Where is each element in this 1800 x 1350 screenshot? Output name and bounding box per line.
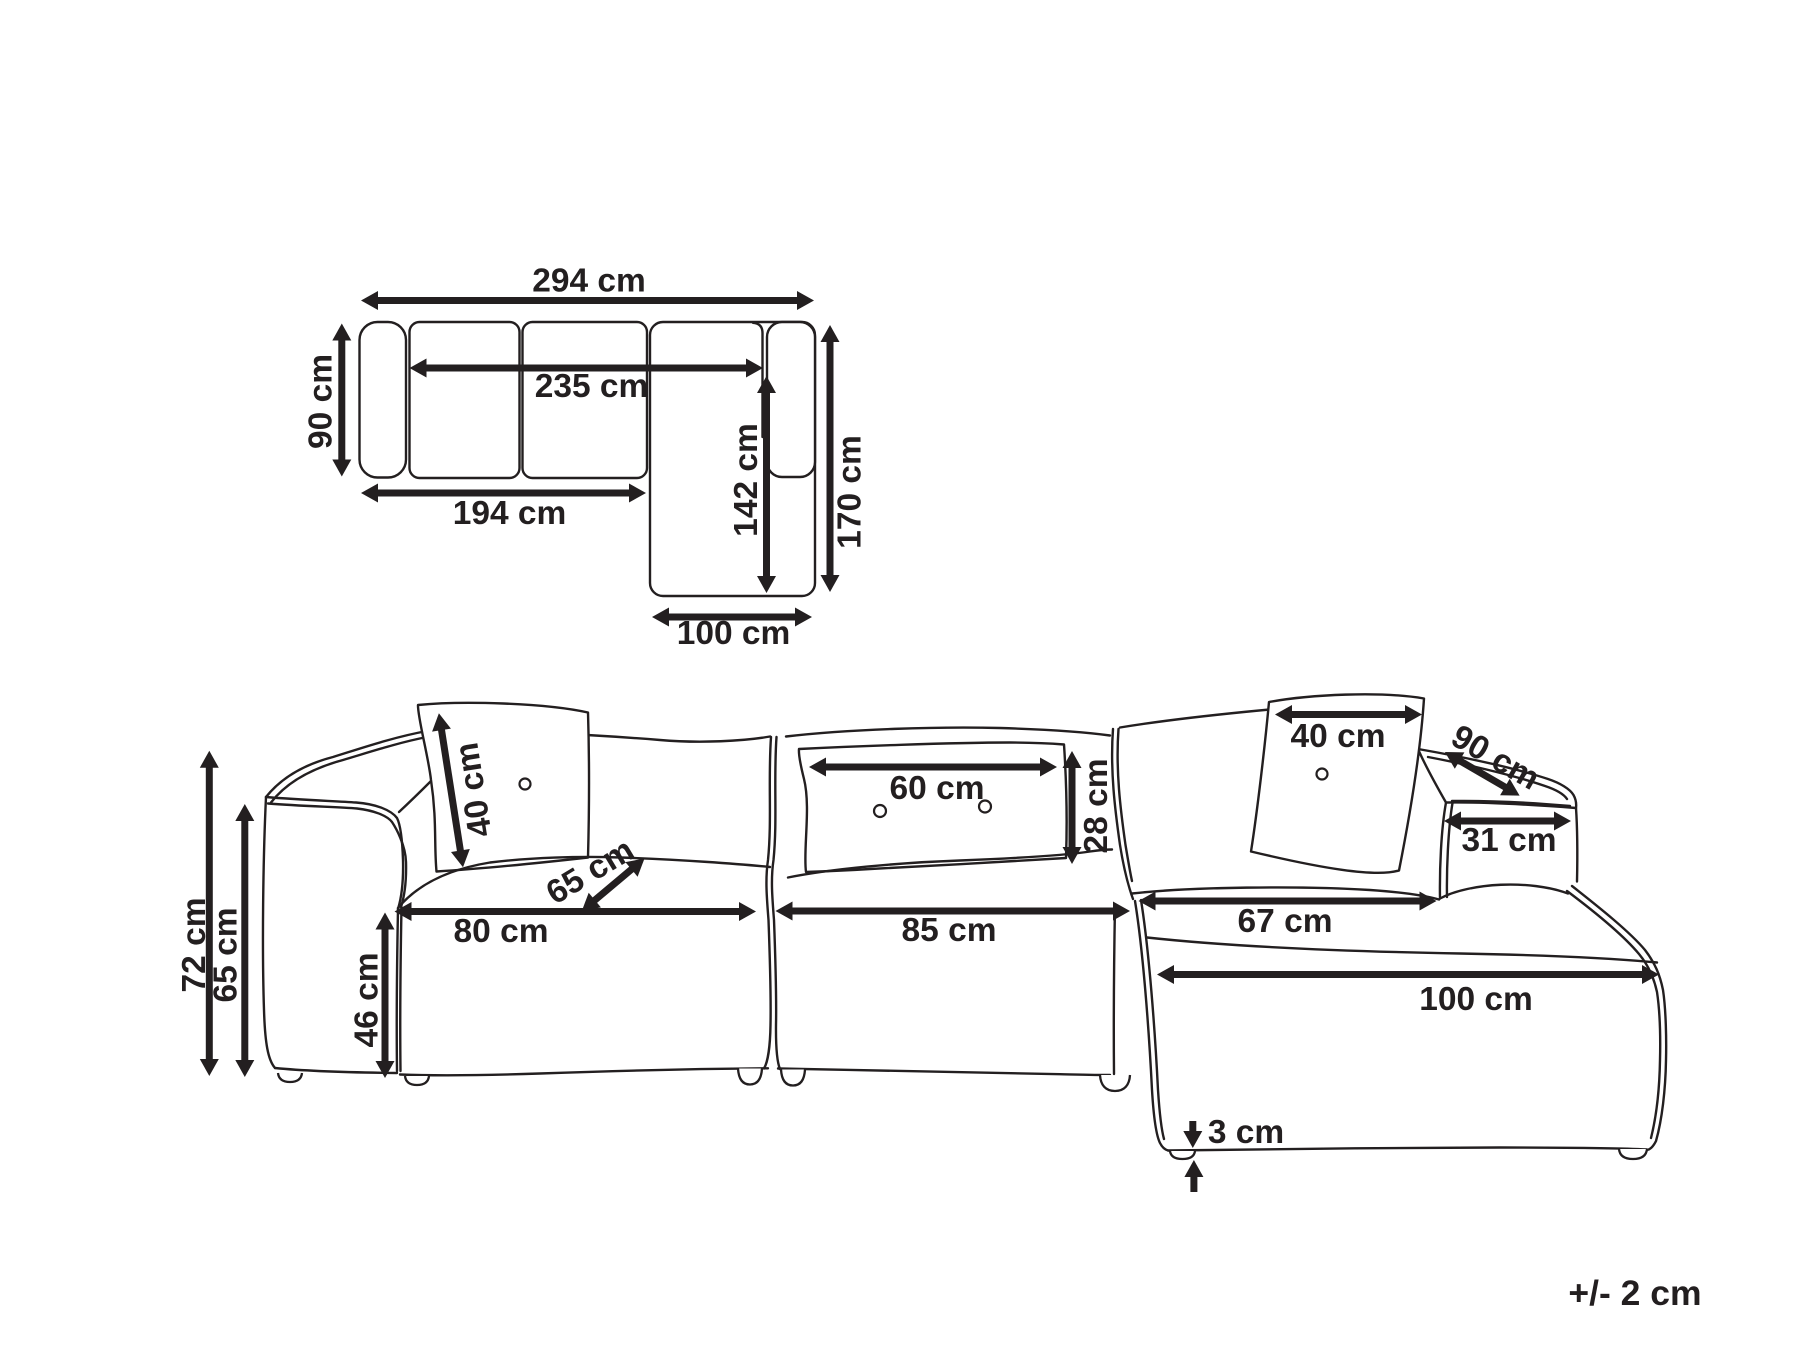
svg-text:31 cm: 31 cm (1462, 822, 1557, 859)
svg-text:65 cm: 65 cm (208, 908, 245, 1003)
svg-text:40 cm: 40 cm (1291, 718, 1386, 755)
svg-text:294 cm: 294 cm (532, 263, 646, 300)
svg-text:67 cm: 67 cm (1238, 903, 1333, 940)
svg-text:142 cm: 142 cm (728, 423, 765, 537)
svg-text:28 cm: 28 cm (1078, 759, 1115, 854)
svg-text:100 cm: 100 cm (1419, 981, 1533, 1018)
svg-text:80 cm: 80 cm (454, 913, 549, 950)
svg-text:100 cm: 100 cm (677, 615, 791, 652)
svg-text:235 cm: 235 cm (535, 368, 649, 405)
svg-text:85 cm: 85 cm (902, 912, 997, 949)
svg-text:90 cm: 90 cm (303, 354, 340, 449)
svg-text:+/- 2 cm: +/- 2 cm (1568, 1273, 1701, 1313)
svg-text:3 cm: 3 cm (1208, 1114, 1284, 1151)
svg-text:194 cm: 194 cm (453, 495, 567, 532)
svg-text:46 cm: 46 cm (349, 953, 386, 1048)
svg-text:60 cm: 60 cm (890, 770, 985, 807)
svg-text:170 cm: 170 cm (832, 435, 869, 549)
